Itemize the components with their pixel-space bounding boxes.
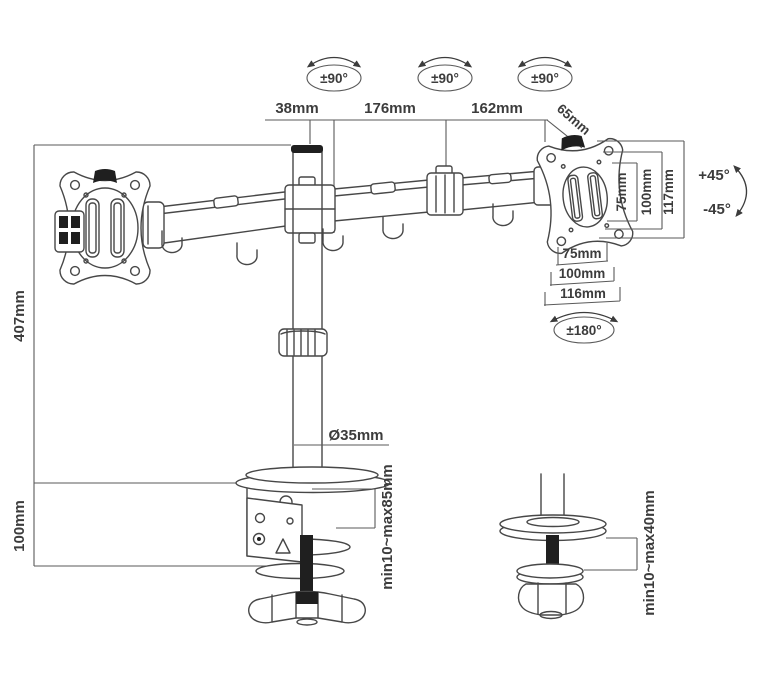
- cable-clip-tab: [213, 196, 238, 209]
- clamp-screw-shaft: [300, 535, 313, 599]
- vesa-plate-left: [55, 169, 150, 284]
- label-pole-height: 407mm: [11, 290, 28, 342]
- label-vesa-v-75: 75mm: [614, 172, 629, 211]
- vesa-slot: [111, 199, 124, 257]
- clamp-face-plate: [247, 498, 302, 562]
- vesa-slot: [86, 199, 99, 257]
- label-dim-65mm: 65mm: [554, 101, 593, 138]
- label-swivel: ±180°: [566, 323, 601, 338]
- label-dim-38mm: 38mm: [275, 100, 318, 117]
- label-vesa-v-117: 117mm: [661, 169, 676, 215]
- label-rot90-3: ±90°: [531, 71, 559, 86]
- label-clamp-range: min10~max85mm: [379, 464, 396, 590]
- cable-clip-tab: [371, 182, 396, 194]
- label-vesa-h-100: 100mm: [559, 266, 606, 281]
- clamp-knob-hub: [296, 592, 318, 604]
- label-dim-162mm: 162mm: [471, 100, 523, 117]
- cable-clip-tab: [489, 173, 512, 184]
- label-tilt-down: -45°: [703, 201, 731, 218]
- label-vesa-h-116: 116mm: [560, 286, 606, 301]
- label-rot90-2: ±90°: [431, 71, 459, 86]
- technical-drawing-page: 407mm 100mm 38mm 176mm 162mm 65mm ±90° ±…: [0, 0, 760, 699]
- swivel-annotation: ±180°: [552, 313, 616, 344]
- label-grommet-range: min10~max40mm: [641, 490, 658, 616]
- label-rot90-1: ±90°: [320, 71, 348, 86]
- grommet-nut: [519, 584, 584, 615]
- tilt-arrow-icon: [735, 167, 747, 215]
- label-pole-diameter: Ø35mm: [328, 427, 383, 444]
- label-base-height: 100mm: [11, 500, 28, 552]
- pole-clamp-bottom-tab: [299, 233, 315, 243]
- arm-left-end-bracket: [143, 202, 164, 248]
- arm-assembly: [143, 166, 564, 265]
- desk-clamp: [236, 467, 390, 625]
- quick-release-lever: [55, 211, 84, 252]
- pole-top-cap: [291, 145, 323, 153]
- grommet-range-dimension: min10~max40mm: [584, 490, 658, 616]
- grommet-base: [500, 474, 606, 619]
- pole-diameter-annotation: Ø35mm: [294, 427, 389, 445]
- label-vesa-h-75: 75mm: [562, 246, 601, 261]
- label-tilt-up: +45°: [698, 167, 729, 184]
- monitor-arm-diagram: 407mm 100mm 38mm 176mm 162mm 65mm ±90° ±…: [0, 0, 760, 699]
- pole-height-collar: [279, 329, 327, 356]
- label-dim-176mm: 176mm: [364, 100, 416, 117]
- label-vesa-v-100: 100mm: [639, 169, 654, 216]
- rotation-90-badges: ±90° ±90° ±90°: [307, 58, 572, 92]
- tilt-annotation: +45° -45°: [698, 167, 746, 218]
